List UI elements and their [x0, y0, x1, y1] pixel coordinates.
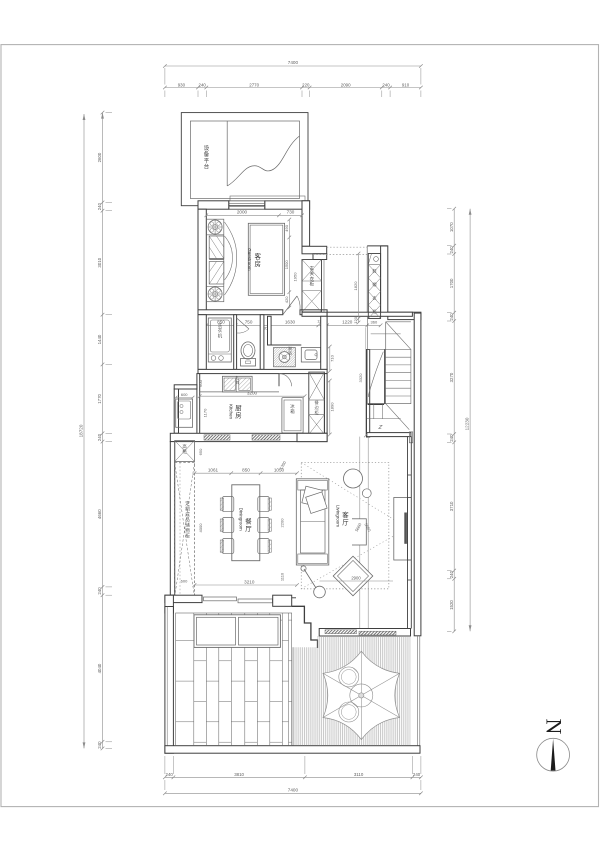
svg-text:240: 240 — [97, 587, 102, 595]
svg-text:420: 420 — [284, 296, 289, 303]
svg-text:柜: 柜 — [310, 281, 315, 288]
svg-text:12230: 12230 — [465, 417, 470, 430]
svg-text:客: 客 — [255, 252, 262, 261]
svg-text:柜: 柜 — [372, 308, 376, 315]
svg-text:1440: 1440 — [97, 334, 102, 344]
svg-text:3210: 3210 — [244, 579, 255, 584]
svg-text:2600: 2600 — [97, 152, 102, 162]
svg-text:240: 240 — [382, 82, 390, 87]
svg-text:4040: 4040 — [97, 663, 102, 673]
svg-text:台: 台 — [235, 379, 239, 384]
svg-text:240: 240 — [449, 313, 454, 321]
svg-text:1820: 1820 — [353, 281, 358, 291]
svg-text:Diningroom: Diningroom — [238, 508, 243, 531]
svg-text:N: N — [542, 719, 567, 735]
svg-text:1220: 1220 — [342, 320, 353, 325]
svg-text:Guestroom: Guestroom — [247, 248, 252, 271]
svg-text:冰: 冰 — [290, 403, 295, 409]
svg-text:1061: 1061 — [208, 467, 219, 472]
svg-text:650: 650 — [198, 448, 203, 455]
svg-text:600: 600 — [198, 379, 203, 386]
svg-text:600: 600 — [181, 578, 188, 583]
svg-text:房: 房 — [235, 411, 241, 420]
svg-text:930: 930 — [178, 82, 186, 87]
svg-text:3710: 3710 — [449, 501, 454, 511]
svg-text:柜: 柜 — [182, 448, 187, 455]
svg-text:厅: 厅 — [245, 525, 252, 533]
svg-text:360: 360 — [371, 320, 378, 325]
svg-text:750: 750 — [245, 320, 253, 325]
svg-text:1770: 1770 — [97, 393, 102, 403]
svg-text:淋: 淋 — [288, 346, 292, 351]
svg-text:灶: 灶 — [235, 375, 239, 380]
svg-text:1890: 1890 — [330, 402, 335, 412]
svg-text:240: 240 — [97, 433, 102, 441]
svg-text:厅: 厅 — [342, 519, 349, 527]
svg-text:浴: 浴 — [288, 351, 292, 356]
svg-text:3320: 3320 — [358, 373, 363, 383]
svg-text:3010: 3010 — [97, 257, 102, 267]
svg-text:2090: 2090 — [341, 82, 351, 87]
svg-text:220: 220 — [302, 82, 310, 87]
svg-text:2200: 2200 — [279, 518, 284, 528]
svg-text:240: 240 — [413, 772, 421, 777]
svg-text:箱: 箱 — [290, 408, 295, 415]
svg-text:平: 平 — [204, 157, 210, 164]
svg-text:餐: 餐 — [245, 517, 252, 526]
svg-text:柜: 柜 — [314, 409, 318, 416]
svg-text:1630: 1630 — [285, 320, 296, 325]
svg-text:1070: 1070 — [449, 222, 454, 232]
svg-text:2900: 2900 — [351, 576, 361, 581]
svg-text:730: 730 — [287, 209, 295, 214]
svg-text:710: 710 — [330, 354, 335, 361]
svg-text:备: 备 — [204, 150, 210, 158]
svg-text:3110: 3110 — [354, 772, 364, 777]
svg-text:客: 客 — [342, 510, 349, 519]
svg-text:2770: 2770 — [249, 82, 259, 87]
svg-text:120: 120 — [353, 316, 358, 323]
svg-text:4660: 4660 — [97, 509, 102, 519]
svg-text:850: 850 — [242, 467, 250, 472]
svg-text:Kitchen: Kitchen — [229, 404, 234, 420]
svg-text:4000: 4000 — [198, 523, 203, 533]
svg-text:240: 240 — [97, 202, 102, 210]
svg-text:910: 910 — [402, 82, 410, 87]
svg-text:设: 设 — [204, 144, 210, 152]
svg-text:240: 240 — [449, 570, 454, 578]
svg-text:600: 600 — [181, 392, 188, 397]
svg-text:1520: 1520 — [449, 600, 454, 610]
svg-text:机: 机 — [218, 332, 223, 339]
svg-text:3200: 3200 — [247, 390, 258, 395]
svg-text:Livingroom: Livingroom — [336, 505, 341, 527]
svg-text:1700: 1700 — [449, 278, 454, 288]
svg-text:厨: 厨 — [235, 404, 242, 412]
svg-text:240: 240 — [97, 741, 102, 749]
svg-text:台: 台 — [204, 163, 209, 171]
svg-text:1110: 1110 — [279, 572, 284, 581]
svg-text:柜: 柜 — [185, 532, 190, 539]
svg-text:240: 240 — [449, 434, 454, 442]
svg-text:240: 240 — [166, 772, 174, 777]
svg-text:帽: 帽 — [372, 281, 376, 288]
svg-text:7400: 7400 — [288, 788, 299, 793]
svg-text:18720: 18720 — [79, 424, 84, 437]
svg-text:240: 240 — [199, 82, 207, 87]
svg-text:3810: 3810 — [234, 772, 244, 777]
svg-text:7400: 7400 — [288, 60, 299, 65]
svg-text:房: 房 — [255, 259, 261, 268]
svg-text:3270: 3270 — [449, 372, 454, 382]
svg-text:2000: 2000 — [237, 209, 248, 214]
svg-text:240: 240 — [449, 246, 454, 254]
svg-text:1950: 1950 — [293, 272, 298, 282]
svg-text:1170: 1170 — [203, 408, 208, 417]
